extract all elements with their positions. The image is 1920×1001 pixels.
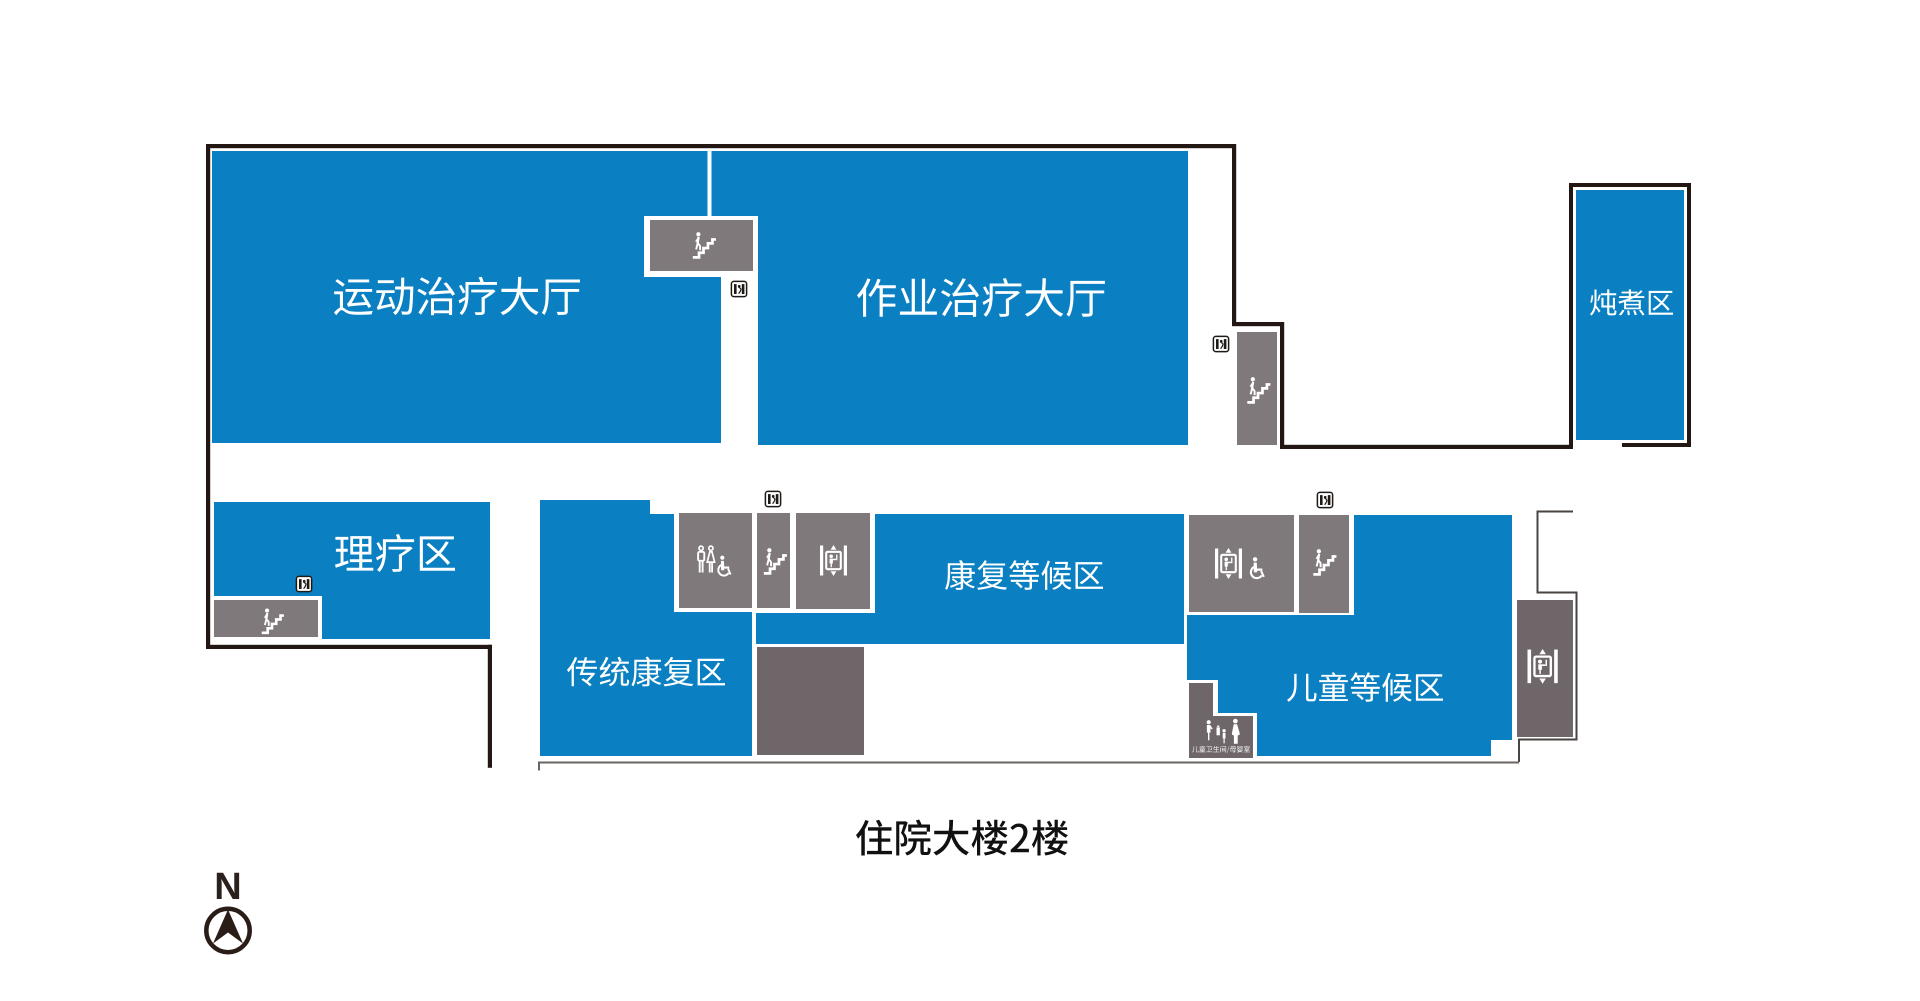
- svg-text:N: N: [214, 866, 241, 908]
